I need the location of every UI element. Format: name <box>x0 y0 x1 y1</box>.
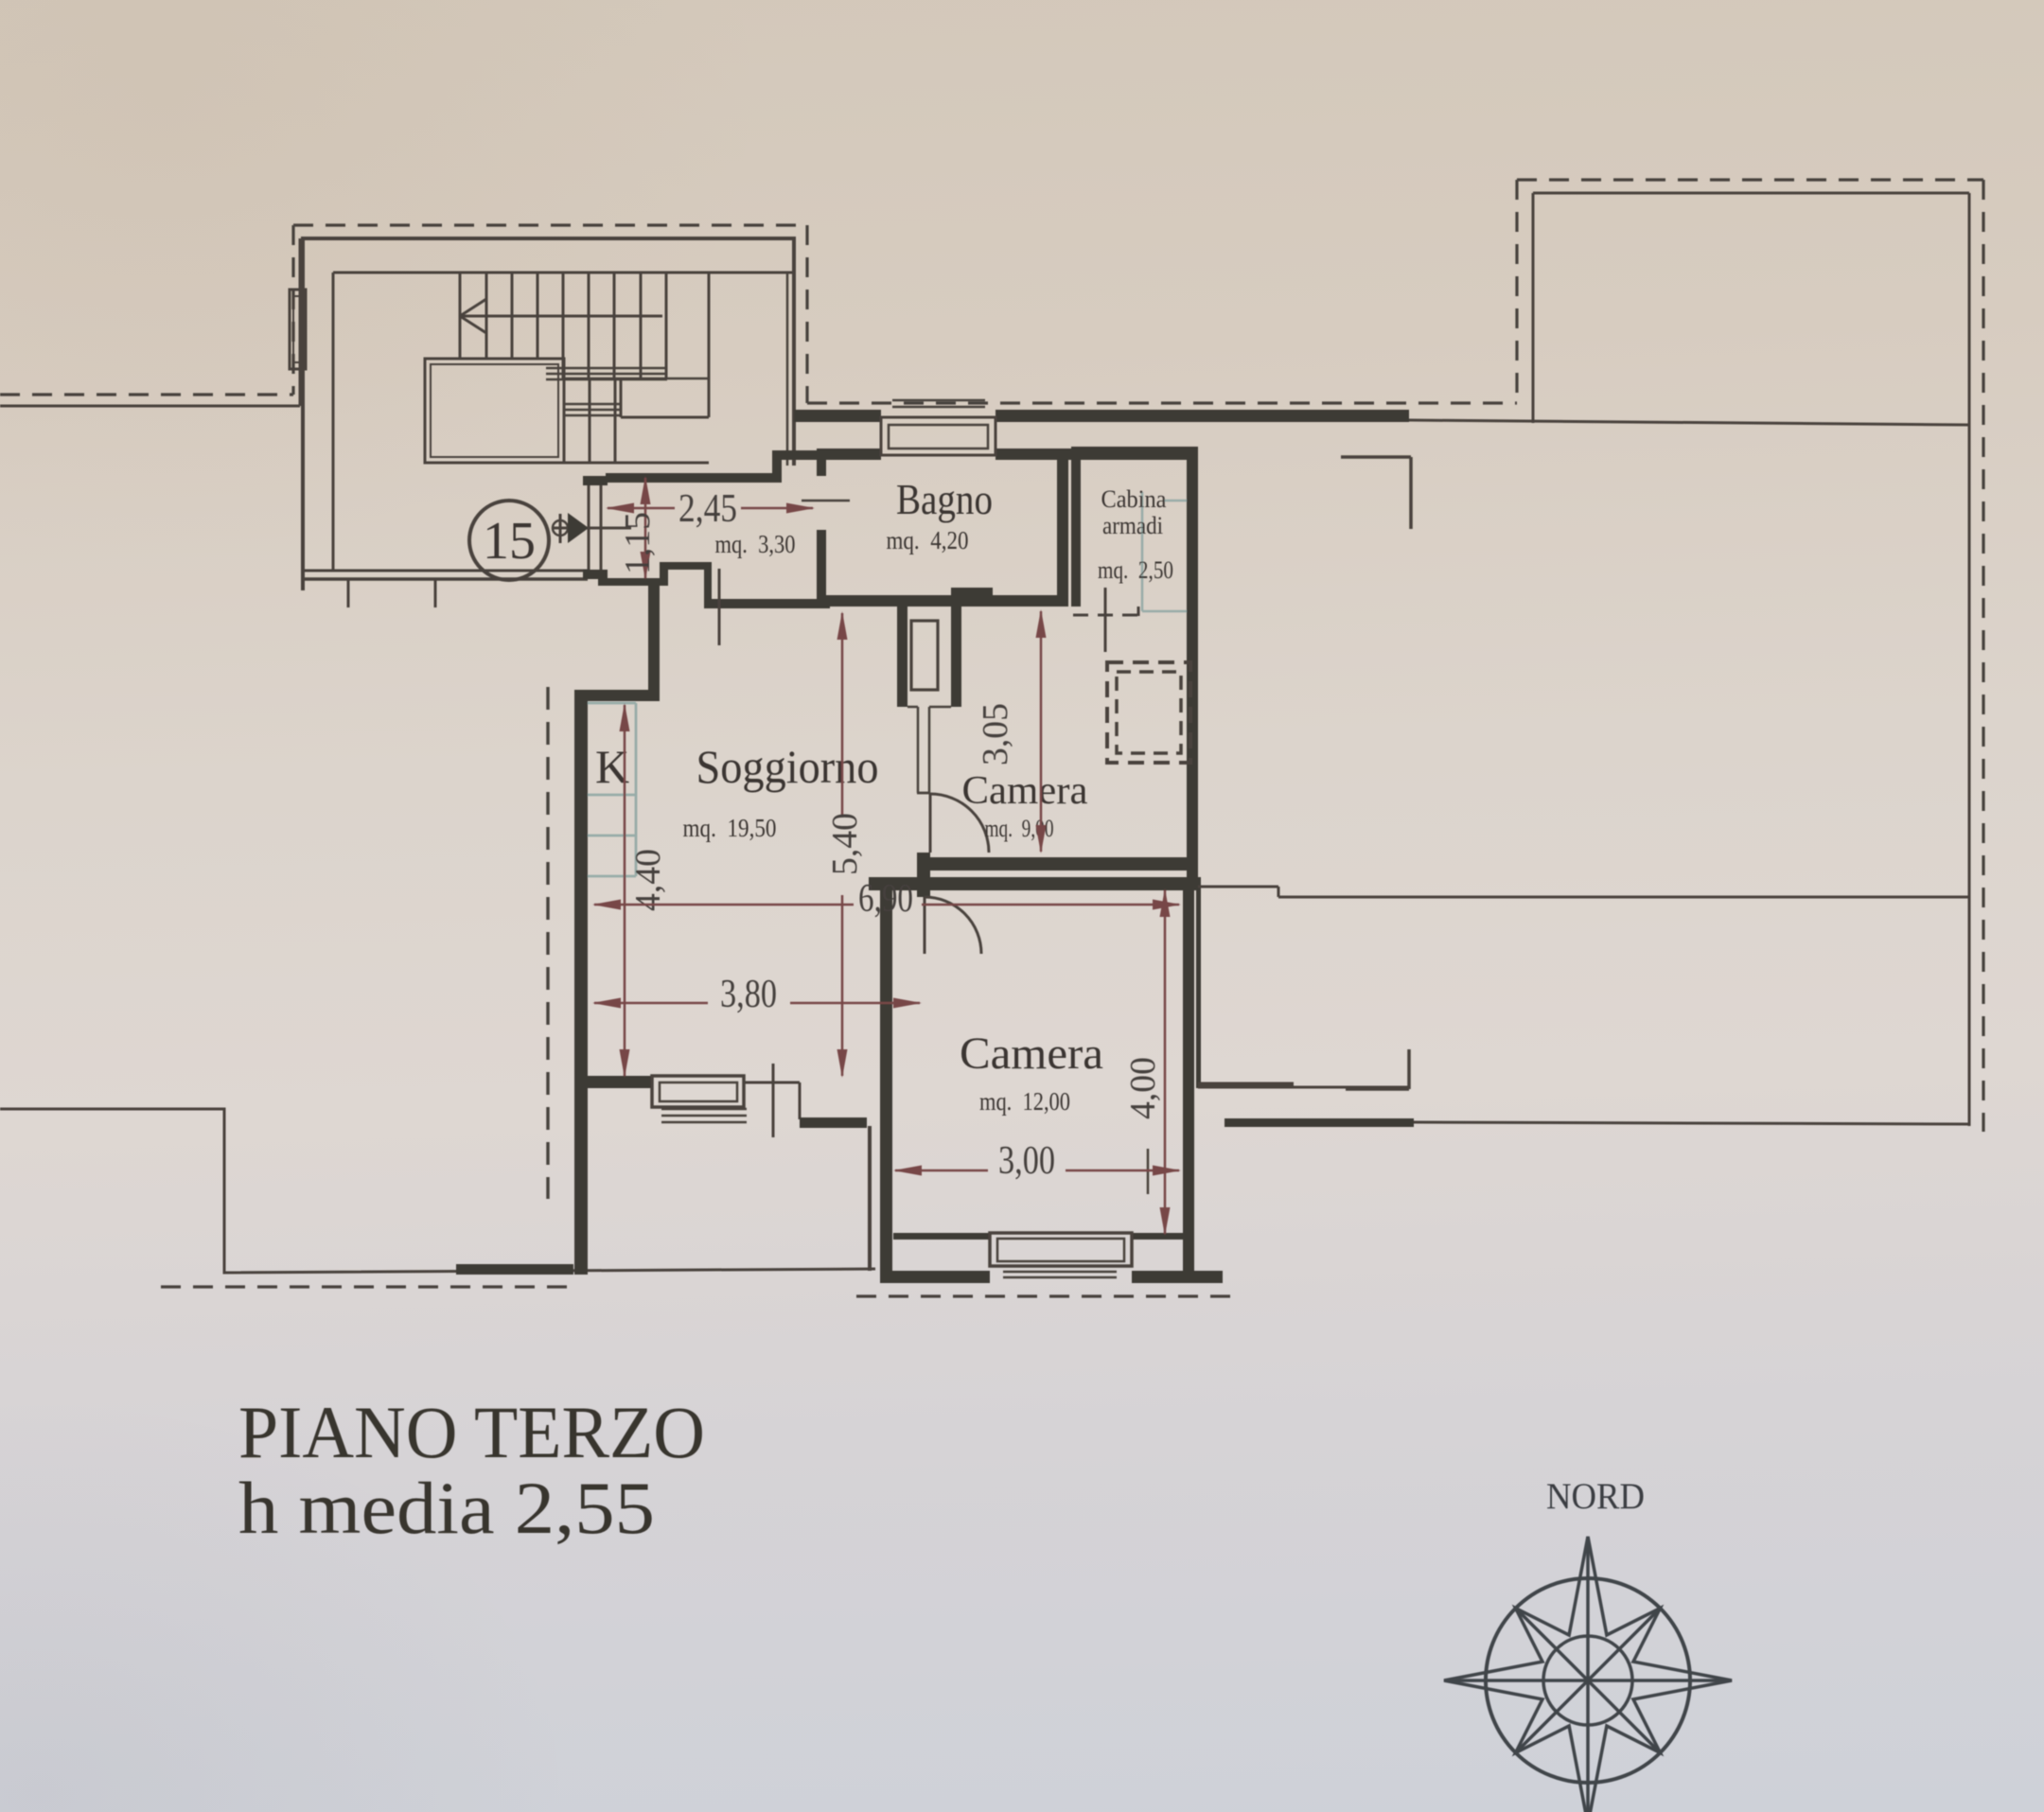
svg-text:h media 2,55: h media 2,55 <box>238 1467 655 1549</box>
svg-text:Cabina: Cabina <box>1101 485 1167 513</box>
svg-text:2,45: 2,45 <box>678 487 737 531</box>
svg-text:3,00: 3,00 <box>998 1139 1055 1183</box>
svg-text:Soggiorno: Soggiorno <box>696 740 879 793</box>
svg-text:armadi: armadi <box>1102 512 1163 539</box>
svg-text:PIANO TERZO: PIANO TERZO <box>238 1391 705 1473</box>
svg-text:Camera: Camera <box>960 1029 1103 1079</box>
svg-text:1,15: 1,15 <box>618 512 658 574</box>
svg-text:mq. 2,50: mq. 2,50 <box>1098 556 1173 584</box>
svg-text:mq. 19,50: mq. 19,50 <box>683 814 777 842</box>
svg-text:NORD: NORD <box>1546 1476 1645 1517</box>
svg-text:15: 15 <box>483 512 536 571</box>
svg-text:mq. 3,30: mq. 3,30 <box>715 530 796 558</box>
svg-text:mq. 12,00: mq. 12,00 <box>979 1087 1070 1116</box>
svg-text:3,05: 3,05 <box>976 703 1015 765</box>
svg-text:3,80: 3,80 <box>720 973 777 1016</box>
svg-text:6,90: 6,90 <box>858 877 913 921</box>
svg-text:5,40: 5,40 <box>825 813 865 875</box>
svg-text:4,40: 4,40 <box>628 849 668 911</box>
svg-text:Bagno: Bagno <box>896 476 993 523</box>
svg-text:mq. 4,20: mq. 4,20 <box>887 526 969 554</box>
svg-text:4,00: 4,00 <box>1123 1057 1163 1119</box>
svg-text:Camera: Camera <box>962 769 1088 813</box>
